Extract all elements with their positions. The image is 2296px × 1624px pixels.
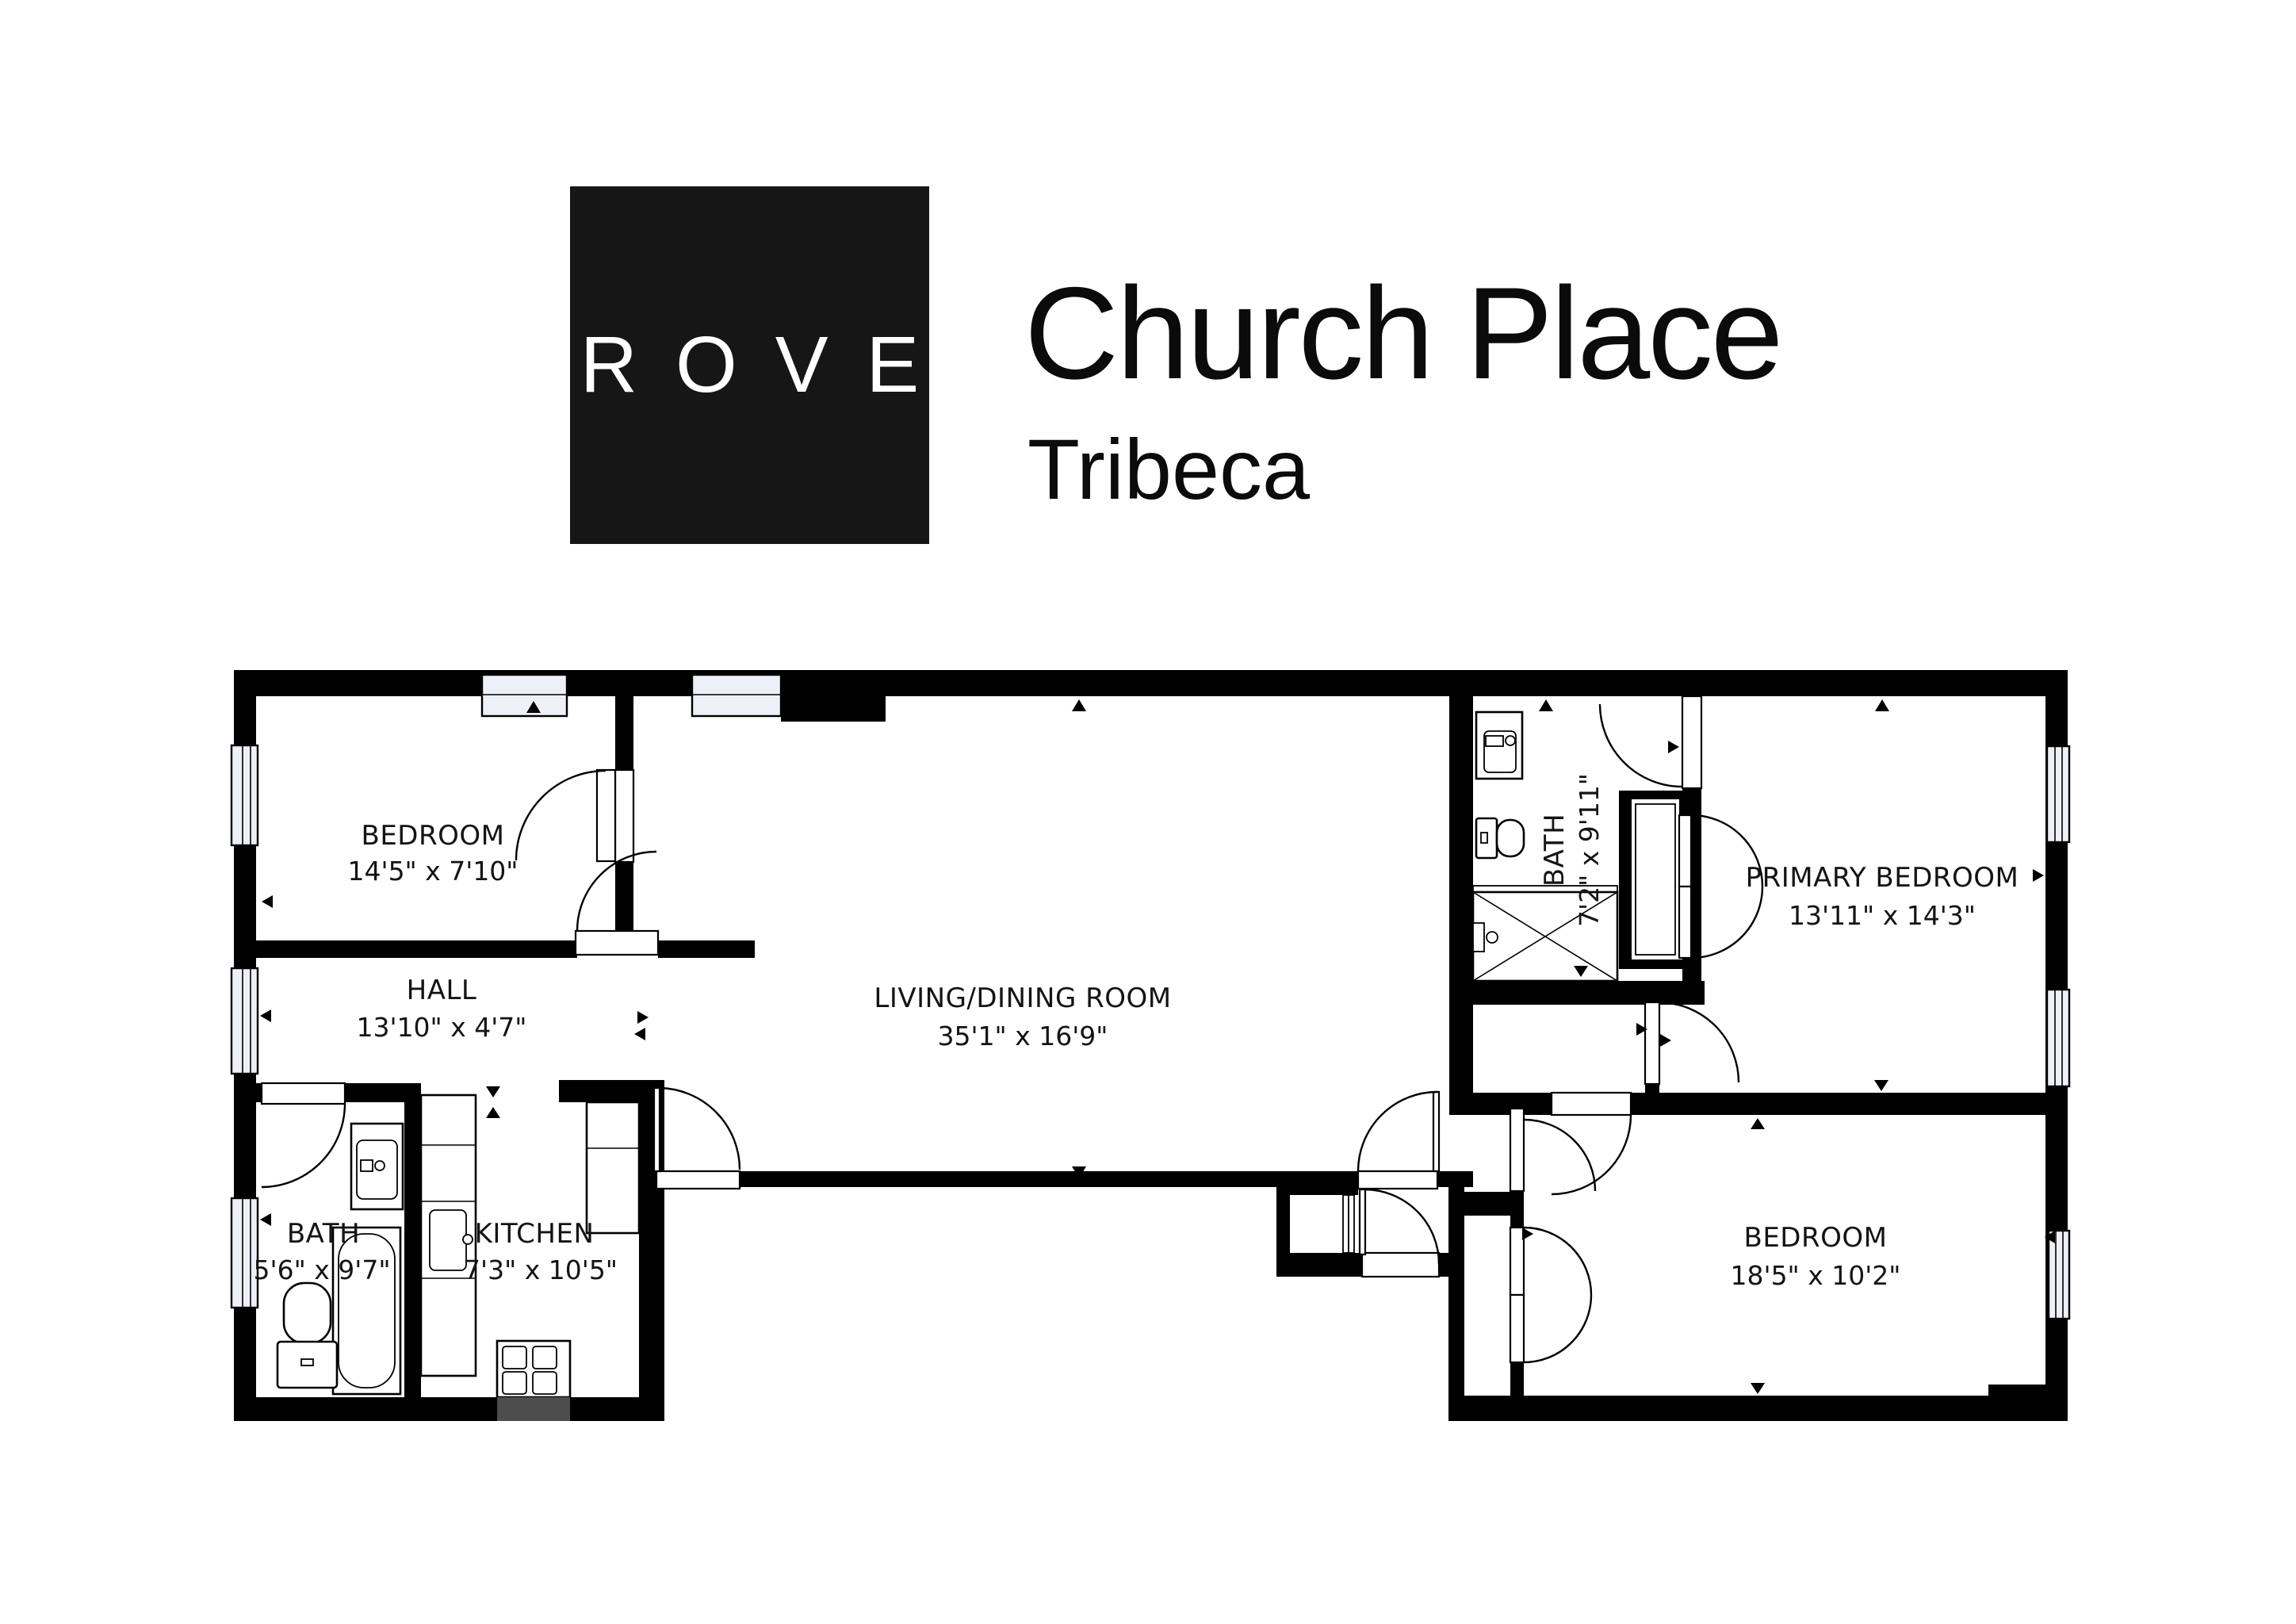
label-bath-left: BATH <box>287 1218 360 1250</box>
dims-bedroom-br: 18'5" x 10'2" <box>1731 1260 1901 1291</box>
dims-kitchen: 7'3" x 10'5" <box>464 1254 618 1285</box>
window-left-hall <box>232 968 258 1074</box>
door-vestibule-living <box>1358 1092 1439 1189</box>
window-right-bedroom <box>2049 1231 2069 1319</box>
marker-up-icon <box>1072 699 1086 711</box>
marker-up-icon <box>1539 699 1553 711</box>
marker-right-icon <box>2033 869 2044 882</box>
marker-left-icon <box>260 1213 271 1226</box>
window-top-bedroom <box>482 675 567 716</box>
marker-up-icon <box>1751 1118 1765 1129</box>
label-bedroom-br: BEDROOM <box>1744 1222 1888 1254</box>
dims-bedroom-tl: 14'5" x 7'10" <box>348 856 519 887</box>
floorplan-page: ROVE Church Place Tribeca <box>0 0 2296 1624</box>
marker-right-icon <box>1660 1034 1671 1047</box>
marker-left-icon <box>260 1009 271 1022</box>
toilet-bath-right <box>1476 818 1524 858</box>
dims-bath-left: 5'6" x 9'7" <box>254 1254 391 1285</box>
toilet-bath-left <box>277 1283 337 1388</box>
label-living-dining: LIVING/DINING ROOM <box>874 982 1171 1014</box>
window-left-bath <box>232 1198 258 1308</box>
label-bedroom-tl: BEDROOM <box>362 820 505 852</box>
closet-doors-bedroom-br-lower <box>1510 1228 1591 1362</box>
room-labels: BEDROOM 14'5" x 7'10" HALL 13'10" x 4'7"… <box>254 773 2019 1291</box>
marker-right-icon <box>637 1011 649 1024</box>
walls <box>234 670 2068 1421</box>
door-bath-left <box>262 1083 345 1187</box>
floorplan-drawing: BEDROOM 14'5" x 7'10" HALL 13'10" x 4'7"… <box>0 0 2296 1624</box>
dims-bath-right: 7'2" x 9'11" <box>1574 773 1605 927</box>
bathtub <box>333 1228 400 1394</box>
closet-panel-vestibule <box>1343 1195 1354 1253</box>
marker-up-icon <box>1875 699 1889 711</box>
dims-living-dining: 35'1" x 16'9" <box>938 1021 1108 1051</box>
marker-left-icon <box>262 895 273 908</box>
label-primary-bedroom: PRIMARY BEDROOM <box>1746 862 2019 894</box>
closet-primary-interior <box>1636 804 1675 955</box>
marker-down-icon <box>486 1086 500 1097</box>
window-right-primary-2 <box>2047 990 2069 1086</box>
stove <box>497 1341 570 1421</box>
marker-down-icon <box>1751 1383 1765 1394</box>
door-unit-entry <box>1360 1189 1439 1277</box>
door-primary-bedroom <box>1645 1002 1739 1084</box>
door-bedroom-br <box>1552 1093 1631 1194</box>
window-right-primary-1 <box>2047 746 2069 842</box>
marker-right-icon <box>1668 741 1679 753</box>
kitchen-counter-right <box>587 1102 639 1233</box>
vanity-sink-bath-left <box>351 1124 403 1209</box>
dims-hall: 13'10" x 4'7" <box>357 1012 527 1043</box>
sink-bath-right <box>1476 712 1522 779</box>
kitchen-counter-left <box>421 1095 476 1376</box>
marker-left-icon <box>634 1028 645 1040</box>
door-bath-right <box>1600 696 1701 788</box>
door-bedroom-tl-side <box>516 770 633 862</box>
marker-right-icon <box>1522 1228 1533 1240</box>
closet-door-bedroom-br-upper <box>1510 1109 1595 1191</box>
label-bath-right: BATH <box>1539 814 1571 887</box>
window-left-bedroom <box>232 745 258 845</box>
dims-primary-bedroom: 13'11" x 14'3" <box>1789 900 1976 931</box>
label-kitchen: KITCHEN <box>475 1218 595 1250</box>
window-top-living <box>692 675 781 716</box>
marker-up-icon <box>486 1107 500 1118</box>
marker-down-icon <box>1874 1080 1888 1091</box>
label-hall: HALL <box>407 975 477 1006</box>
door-kitchen-living <box>654 1088 740 1189</box>
